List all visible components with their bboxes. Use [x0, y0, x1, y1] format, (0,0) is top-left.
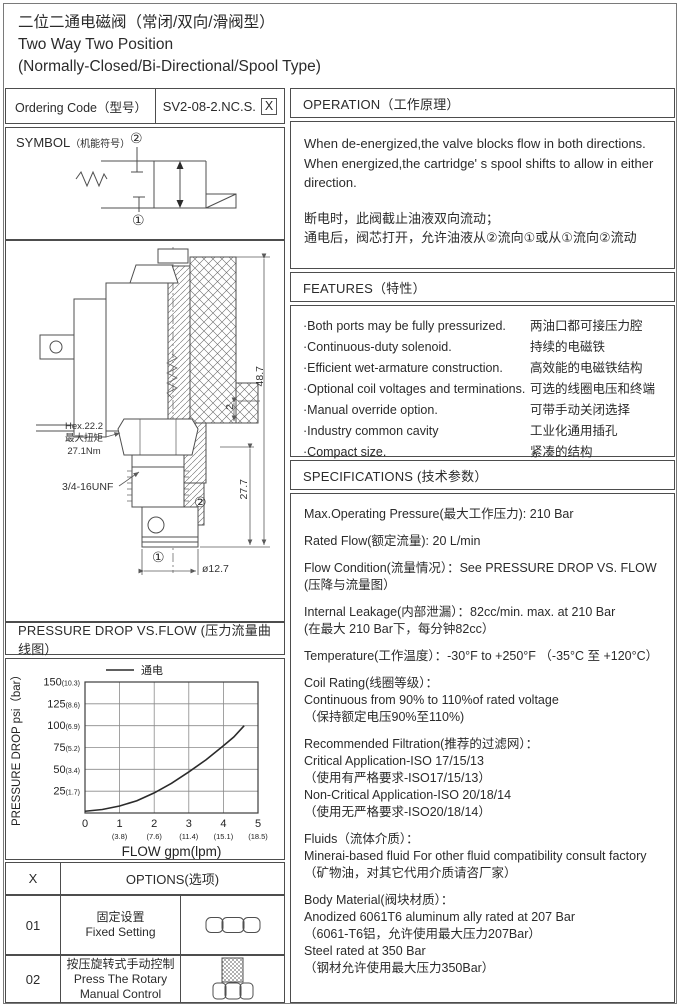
- option-01-cn: 固定设置: [96, 910, 144, 925]
- specifications-header: SPECIFICATIONS (技术参数）: [290, 460, 675, 490]
- spec-paragraph: Recommended Filtration(推荐的过滤网）：Critical …: [304, 736, 661, 821]
- svg-text:(7.6): (7.6): [146, 832, 162, 841]
- svg-text:25(1.7): 25(1.7): [53, 786, 80, 798]
- svg-text:4: 4: [220, 818, 226, 830]
- svg-text:(18.5): (18.5): [248, 832, 268, 841]
- valve-cross-section-drawing: [6, 241, 284, 621]
- options-col-title: OPTIONS(选项): [61, 863, 284, 894]
- ordering-code-suffix-box: X: [261, 98, 277, 115]
- option-02-cn: 按压旋转式手动控制: [66, 957, 174, 972]
- hex-torque-label: Hex.22.2 最大扭矩 27.1Nm: [52, 421, 116, 458]
- spec-paragraph: Fluids（流体介质）：Minerai-based fluid For oth…: [304, 831, 661, 882]
- drawing-port-2: ②: [194, 494, 207, 511]
- svg-text:(15.1): (15.1): [214, 832, 234, 841]
- option-02-en2: Manual Control: [80, 987, 161, 1002]
- ordering-code-value: SV2-08-2.NC.S. X: [156, 89, 284, 123]
- spec-paragraph: Max.Operating Pressure(最大工作压力): 210 Bar: [304, 506, 661, 523]
- chart-section: 25(1.7)50(3.4)75(5.2)100(6.9)125(8.6)150…: [5, 658, 285, 860]
- thread-label: 3/4-16UNF: [62, 481, 113, 493]
- feature-item: ·Manual override option.可带手动关闭选择: [303, 400, 662, 421]
- svg-text:(11.4): (11.4): [179, 832, 199, 841]
- operation-text-en: When de-energized,the valve blocks flow …: [304, 134, 661, 193]
- rotary-knob-icon: [210, 957, 256, 1001]
- svg-text:(3.8): (3.8): [112, 832, 128, 841]
- options-col-x: X: [6, 863, 61, 894]
- options-header-row: X OPTIONS(选项): [5, 862, 285, 895]
- svg-text:2: 2: [151, 818, 157, 830]
- option-01-code: 01: [6, 896, 61, 954]
- svg-text:75(5.2): 75(5.2): [53, 742, 80, 754]
- svg-text:5: 5: [255, 818, 261, 830]
- option-01-icon-cell: [181, 896, 284, 954]
- operation-text-cn1: 断电时，此阀截止油液双向流动；: [304, 209, 661, 229]
- feature-item: ·Efficient wet-armature construction.高效能…: [303, 358, 662, 379]
- page-title-en-1: Two Way Two Position: [18, 34, 321, 56]
- option-01-en: Fixed Setting: [85, 925, 155, 940]
- ordering-code-row: Ordering Code（型号） SV2-08-2.NC.S. X: [5, 88, 285, 124]
- svg-text:50(3.4): 50(3.4): [53, 764, 80, 776]
- fixed-setting-nut-icon: [205, 916, 261, 934]
- chart-header: PRESSURE DROP VS.FLOW (压力流量曲线图）: [5, 622, 285, 655]
- symbol-section: SYMBOL（机能符号） ② ①: [5, 127, 285, 240]
- dim-2: 2: [224, 404, 236, 410]
- features-list: ·Both ports may be fully pressurized.两油口…: [291, 306, 674, 473]
- option-02-desc: 按压旋转式手动控制 Press The Rotary Manual Contro…: [61, 956, 181, 1002]
- svg-text:通电: 通电: [141, 664, 163, 677]
- svg-text:150(10.3): 150(10.3): [43, 677, 80, 689]
- ordering-code-text: SV2-08-2.NC.S.: [163, 99, 256, 114]
- pressure-flow-chart: 25(1.7)50(3.4)75(5.2)100(6.9)125(8.6)150…: [6, 659, 284, 859]
- option-02-code: 02: [6, 956, 61, 1002]
- page-title-en-2: (Normally-Closed/Bi-Directional/Spool Ty…: [18, 56, 321, 78]
- dim-27-7: 27.7: [238, 479, 250, 499]
- drawing-port-1: ①: [152, 549, 165, 566]
- datasheet-page: 二位二通电磁阀（常闭/双向/滑阀型） Two Way Two Position …: [0, 0, 680, 1007]
- dim-diameter: ø12.7: [202, 563, 229, 575]
- spec-paragraph: Rated Flow(额定流量): 20 L/min: [304, 533, 661, 550]
- option-row-02: 02 按压旋转式手动控制 Press The Rotary Manual Con…: [5, 955, 285, 1003]
- svg-text:100(6.9): 100(6.9): [47, 720, 80, 732]
- spec-paragraph: Flow Condition(流量情况）：See PRESSURE DROP V…: [304, 560, 661, 594]
- svg-text:1: 1: [117, 818, 123, 830]
- specifications-body: Max.Operating Pressure(最大工作压力): 210 BarR…: [291, 494, 674, 999]
- dim-48-7: 48.7: [254, 366, 266, 386]
- svg-text:FLOW gpm(lpm): FLOW gpm(lpm): [122, 844, 222, 859]
- operation-header: OPERATION（工作原理）: [290, 88, 675, 118]
- spec-paragraph: Body Material(阀块材质）：Anodized 6061T6 alum…: [304, 892, 661, 977]
- features-section: ·Both ports may be fully pressurized.两油口…: [290, 305, 675, 457]
- page-title-cn: 二位二通电磁阀（常闭/双向/滑阀型）: [18, 12, 321, 34]
- feature-item: ·Industry common cavity工业化通用插孔: [303, 421, 662, 442]
- specifications-section: Max.Operating Pressure(最大工作压力): 210 BarR…: [290, 493, 675, 1003]
- operation-text-cn2: 通电后，阀芯打开，允许油液从②流向①或从①流向②流动: [304, 228, 661, 248]
- spec-paragraph: Coil Rating(线圈等级）：Continuous from 90% to…: [304, 675, 661, 726]
- option-row-01: 01 固定设置 Fixed Setting: [5, 895, 285, 955]
- symbol-port-2: ②: [130, 130, 143, 147]
- symbol-label: SYMBOL（机能符号）: [16, 135, 130, 150]
- spec-paragraph: Temperature(工作温度）：-30°F to +250°F （-35°C…: [304, 648, 661, 665]
- option-01-desc: 固定设置 Fixed Setting: [61, 896, 181, 954]
- cross-section-drawing-section: Hex.22.2 最大扭矩 27.1Nm 3/4-16UNF 48.7 27.7…: [5, 240, 285, 622]
- symbol-port-1: ①: [132, 212, 145, 229]
- feature-item: ·Both ports may be fully pressurized.两油口…: [303, 316, 662, 337]
- feature-item: ·Continuous-duty solenoid.持续的电磁铁: [303, 337, 662, 358]
- operation-section: When de-energized,the valve blocks flow …: [290, 121, 675, 269]
- svg-text:PRESSURE DROP psi（bar）: PRESSURE DROP psi（bar）: [10, 669, 23, 826]
- svg-text:125(8.6): 125(8.6): [47, 698, 80, 710]
- option-02-icon-cell: [181, 956, 284, 1002]
- svg-text:3: 3: [186, 818, 192, 830]
- svg-text:0: 0: [82, 818, 88, 830]
- ordering-code-label: Ordering Code（型号）: [6, 89, 156, 123]
- spec-paragraph: Internal Leakage(内部泄漏）：82cc/min. max. at…: [304, 604, 661, 638]
- option-02-en: Press The Rotary: [74, 972, 167, 987]
- title-block: 二位二通电磁阀（常闭/双向/滑阀型） Two Way Two Position …: [18, 12, 321, 78]
- feature-item: ·Optional coil voltages and terminations…: [303, 379, 662, 400]
- features-header: FEATURES（特性）: [290, 272, 675, 302]
